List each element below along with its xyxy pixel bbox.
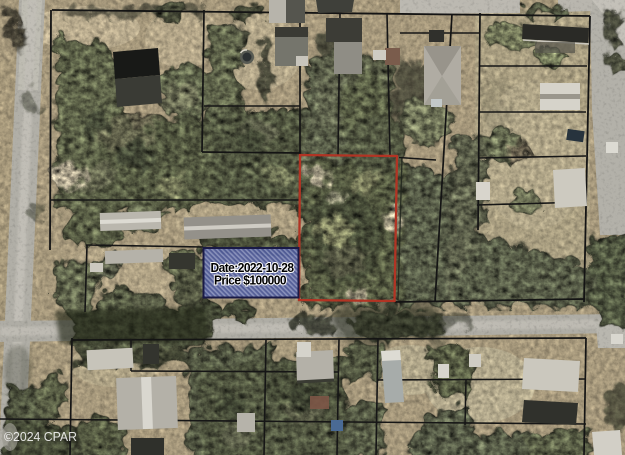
svg-text:©2024 CPAR: ©2024 CPAR — [4, 429, 77, 444]
svg-text:Price $100000: Price $100000 — [214, 273, 286, 288]
